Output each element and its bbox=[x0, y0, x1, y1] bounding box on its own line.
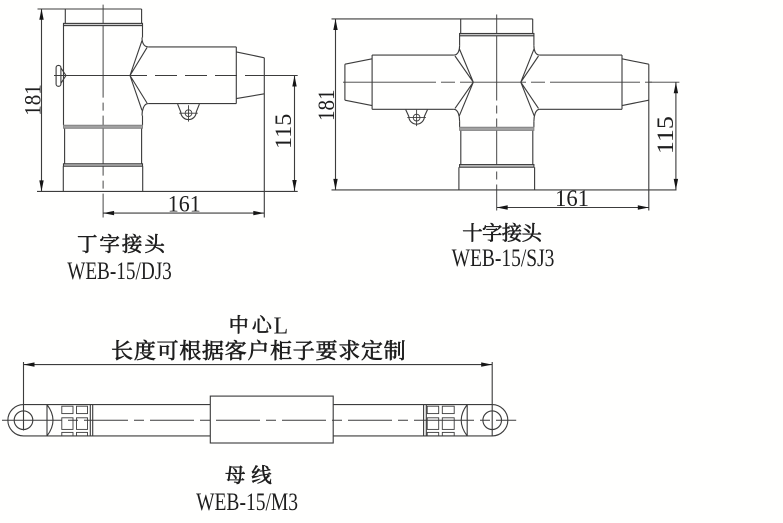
svg-text:WEB-15/M3: WEB-15/M3 bbox=[196, 489, 298, 516]
svg-text:WEB-15/SJ3: WEB-15/SJ3 bbox=[452, 245, 555, 272]
svg-text:161: 161 bbox=[168, 191, 201, 216]
svg-text:181: 181 bbox=[314, 89, 339, 121]
svg-text:115: 115 bbox=[271, 114, 296, 150]
svg-text:115: 115 bbox=[653, 116, 678, 154]
svg-text:L: L bbox=[274, 314, 289, 340]
svg-text:WEB-15/DJ3: WEB-15/DJ3 bbox=[67, 258, 172, 285]
svg-text:161: 161 bbox=[555, 186, 589, 211]
svg-text:181: 181 bbox=[21, 84, 46, 116]
